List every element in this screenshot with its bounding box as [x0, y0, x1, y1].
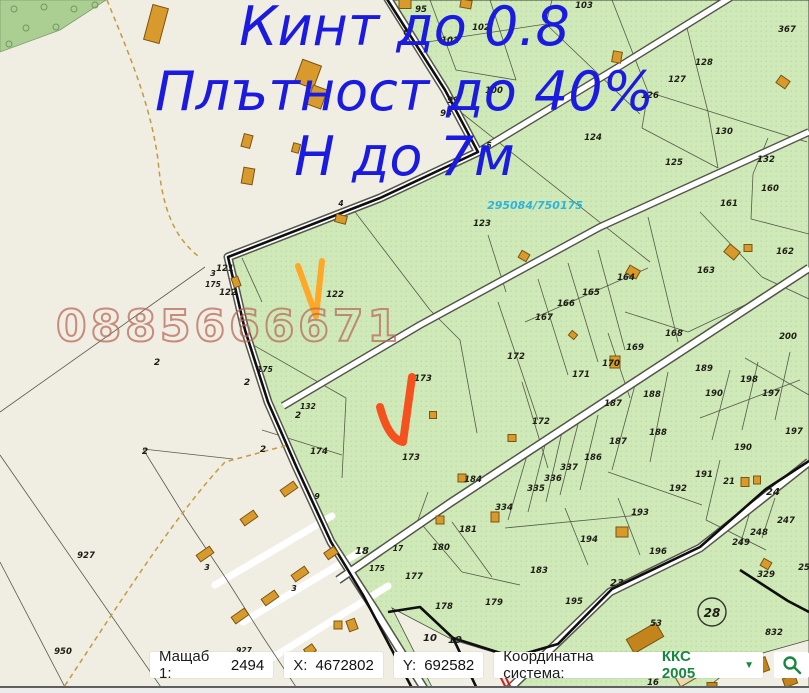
- parcel-label: 950: [54, 647, 72, 657]
- x-label: X:: [293, 657, 307, 674]
- crs-chip[interactable]: Координатна система: ККС 2005 ▼: [494, 652, 763, 678]
- parcel-label: 832: [765, 628, 783, 638]
- parcel-label: 132: [757, 155, 775, 165]
- y-label: Y:: [403, 657, 416, 674]
- circled-parcel-label: 28: [704, 606, 721, 620]
- parcel-label: 165: [582, 288, 600, 298]
- parcel-label: 53: [650, 619, 662, 629]
- parcel-label: 197: [762, 389, 780, 399]
- parcel-label: 18: [355, 546, 369, 557]
- parcel-label: 122: [326, 290, 344, 300]
- parcel-label: 3: [291, 584, 297, 593]
- parcel-label: 4: [338, 199, 343, 208]
- parcel-label: 178: [435, 602, 453, 612]
- y-coordinate-chip[interactable]: Y: 692582: [394, 652, 483, 678]
- parcel-label: 189: [695, 364, 713, 374]
- parcel-label: 183: [530, 566, 548, 576]
- parcel-label: 927: [77, 551, 95, 561]
- parcel-label: 161: [720, 199, 738, 209]
- parcel-label: 192: [669, 484, 687, 494]
- search-button[interactable]: [774, 652, 809, 678]
- parcel-label: 168: [665, 329, 683, 339]
- parcel-label: 103: [575, 1, 593, 11]
- x-value[interactable]: 4672802: [315, 657, 373, 674]
- parcel-label: 295084/750175: [487, 199, 583, 212]
- x-coordinate-chip[interactable]: X: 4672802: [284, 652, 383, 678]
- parcel-label: 125: [665, 158, 683, 168]
- parcel-label: 164: [617, 273, 635, 283]
- parcel-label: 172: [507, 352, 525, 362]
- parcel-label: 95: [415, 5, 427, 15]
- parcel-label: 163: [697, 266, 715, 276]
- parcel-label: 160: [761, 184, 779, 194]
- scale-chip[interactable]: Мащаб 1: 2494: [150, 652, 273, 678]
- parcel-label: 123: [473, 219, 491, 229]
- parcel-label: 173: [414, 374, 432, 384]
- parcel-label: 186: [584, 453, 602, 463]
- parcel-label: 122: [219, 288, 237, 298]
- parcel-label: 190: [705, 389, 723, 399]
- parcel-label: 200: [779, 332, 797, 342]
- parcel-label: 101: [441, 36, 459, 46]
- parcel-label: 174: [310, 447, 328, 457]
- parcel-label: 124: [584, 133, 602, 143]
- parcel-label: 193: [631, 508, 649, 518]
- parcel-label: 21: [723, 477, 735, 487]
- parcel-label: 180: [432, 543, 450, 553]
- parcel-label: 10: [423, 633, 437, 644]
- parcel-label: 367: [778, 25, 796, 35]
- parcel-label: 2: [154, 358, 160, 368]
- parcel-label: 198: [740, 375, 758, 385]
- crs-label: Координатна система:: [503, 648, 654, 682]
- parcel-label: 247: [777, 516, 795, 526]
- parcel-label: 126: [641, 91, 659, 101]
- scale-label: Мащаб 1:: [159, 648, 223, 682]
- parcel-label: 177: [405, 572, 423, 582]
- status-bar: Мащаб 1: 2494 X: 4672802 Y: 692582 Коорд…: [150, 652, 809, 678]
- parcel-label: 334: [495, 503, 513, 513]
- y-value[interactable]: 692582: [424, 657, 474, 674]
- parcel-label: 2: [295, 411, 301, 421]
- parcel-label: 19: [448, 635, 462, 646]
- parcel-label: 172: [532, 417, 550, 427]
- parcel-label: 187: [604, 399, 622, 409]
- parcel-label: 335: [527, 484, 545, 494]
- crs-value[interactable]: ККС 2005: [662, 648, 726, 682]
- parcel-label: 23: [610, 578, 624, 589]
- parcel-label: 100: [485, 86, 503, 96]
- parcel-label: 98: [440, 109, 452, 119]
- parcel-label: 127: [668, 75, 686, 85]
- parcel-label: 188: [649, 428, 667, 438]
- parcel-label: 166: [557, 299, 575, 309]
- parcel-label: 195: [565, 597, 583, 607]
- parcel-label: 9: [314, 492, 320, 501]
- parcel-label: 99: [447, 96, 459, 106]
- parcel-label: 337: [560, 463, 578, 473]
- parcel-label: 170: [602, 359, 620, 369]
- parcel-label: 132: [300, 402, 316, 411]
- parcel-label: 173: [402, 453, 420, 463]
- parcel-label: 2: [260, 445, 266, 455]
- parcel-label: 187: [609, 437, 627, 447]
- parcel-label: 169: [626, 343, 644, 353]
- parcel-label: 5: [486, 141, 492, 150]
- parcel-label: 175: [257, 365, 273, 374]
- scale-value[interactable]: 2494: [231, 657, 264, 674]
- parcel-label: 17: [393, 544, 404, 553]
- parcel-label: 181: [459, 525, 477, 535]
- map-window: 9510210110361009998367128127126130512512…: [0, 0, 809, 693]
- parcel-label: 25: [798, 563, 809, 573]
- parcel-label: 2: [244, 378, 250, 388]
- parcel-label: 175: [369, 564, 385, 573]
- parcel-label: 329: [757, 570, 775, 580]
- parcel-label: 171: [572, 370, 590, 380]
- parcel-label: 162: [776, 247, 794, 257]
- parcel-label: 194: [580, 535, 598, 545]
- parcel-label: 102: [472, 23, 490, 33]
- cadastral-map[interactable]: 9510210110361009998367128127126130512512…: [0, 0, 809, 693]
- parcel-label: 190: [734, 443, 752, 453]
- parcel-label: 197: [785, 427, 803, 437]
- parcel-label: 121: [216, 264, 234, 274]
- parcel-label: 336: [544, 474, 562, 484]
- parcel-label: 167: [535, 313, 553, 323]
- parcel-label: 130: [715, 127, 733, 137]
- parcel-label: 184: [464, 475, 482, 485]
- chevron-down-icon[interactable]: ▼: [744, 660, 754, 671]
- parcel-label: 191: [695, 470, 713, 480]
- parcel-label: 6: [403, 28, 408, 37]
- parcel-label: 24: [766, 487, 780, 498]
- parcel-label: 128: [695, 58, 713, 68]
- window-bottom-border: [0, 686, 809, 693]
- parcel-label: 248: [750, 528, 768, 538]
- parcel-label: 179: [485, 598, 503, 608]
- parcel-label: 188: [643, 390, 661, 400]
- parcel-label: 3: [204, 563, 210, 572]
- search-icon: [782, 655, 802, 675]
- parcel-label: 249: [732, 538, 750, 548]
- parcel-label: 3: [210, 269, 216, 278]
- parcel-label: 2: [142, 447, 148, 457]
- parcel-label: 196: [649, 547, 667, 557]
